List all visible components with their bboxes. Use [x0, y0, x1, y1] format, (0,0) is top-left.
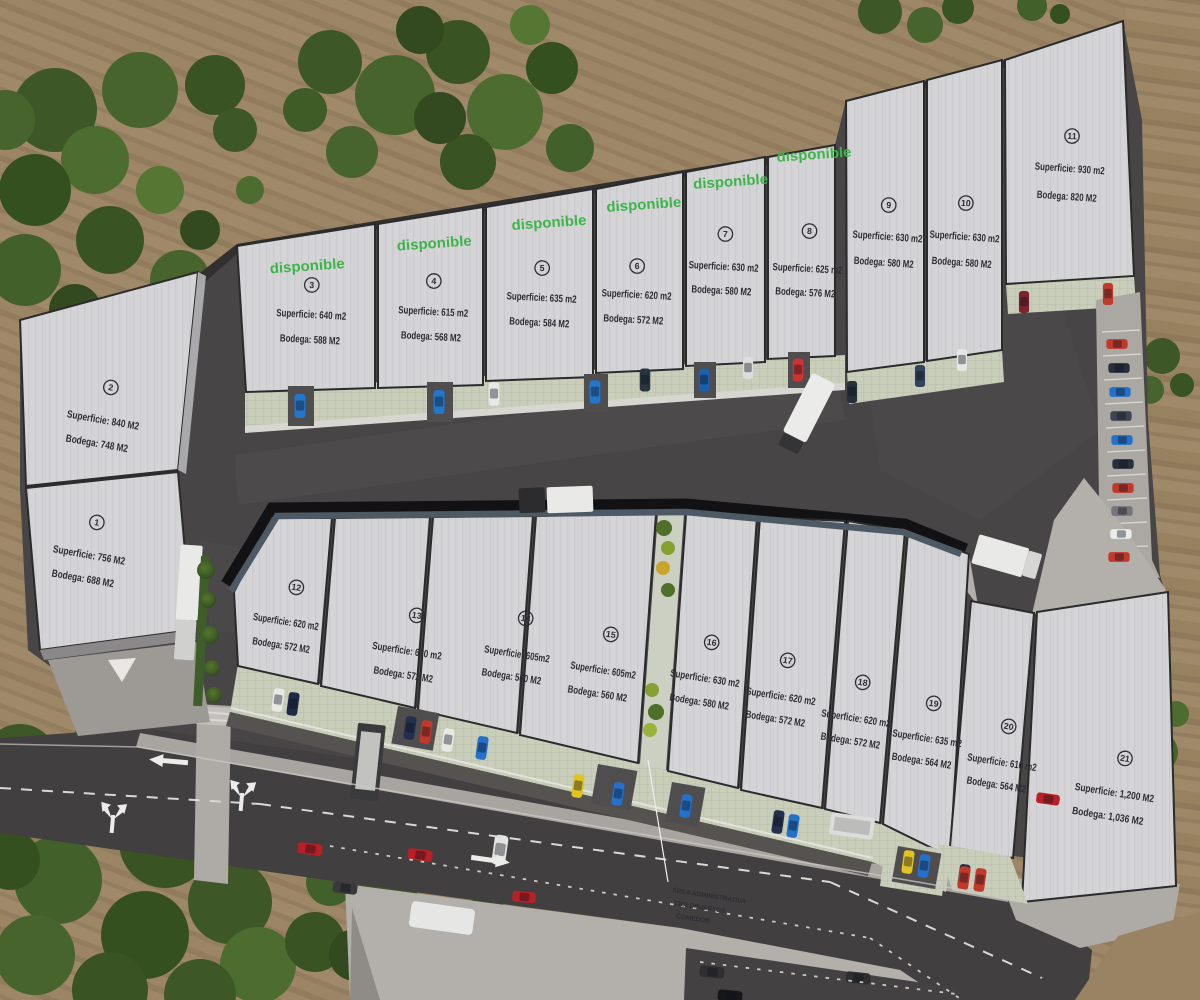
svg-text:4: 4 [431, 276, 437, 286]
svg-text:15: 15 [605, 629, 616, 640]
svg-text:3: 3 [309, 280, 315, 290]
svg-text:17: 17 [782, 655, 793, 666]
svg-text:16: 16 [706, 637, 717, 648]
svg-text:7: 7 [723, 229, 729, 239]
svg-text:10: 10 [961, 198, 972, 209]
svg-text:13: 13 [411, 610, 422, 621]
svg-text:14: 14 [520, 613, 531, 624]
svg-text:9: 9 [886, 200, 892, 210]
svg-text:5: 5 [539, 263, 545, 273]
svg-text:6: 6 [634, 261, 640, 271]
svg-text:12: 12 [291, 582, 302, 593]
svg-text:20: 20 [1003, 721, 1014, 732]
svg-text:19: 19 [928, 698, 939, 709]
svg-text:11: 11 [1067, 131, 1077, 142]
svg-text:18: 18 [857, 677, 868, 688]
svg-text:8: 8 [807, 226, 813, 236]
svg-text:21: 21 [1119, 753, 1130, 764]
